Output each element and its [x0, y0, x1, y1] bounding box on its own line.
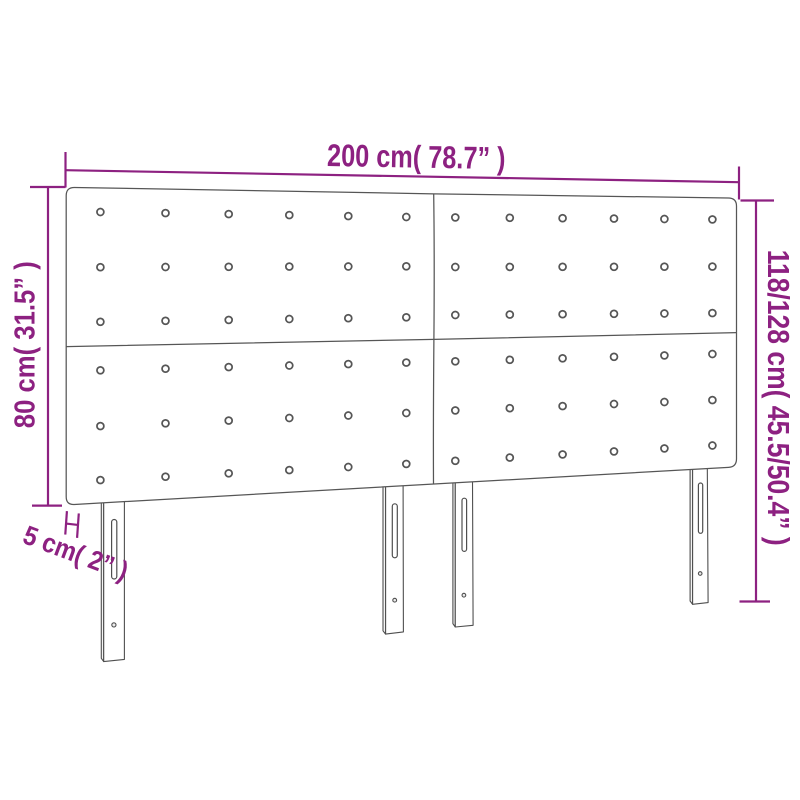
svg-text:80 cm( 31.5” ): 80 cm( 31.5” )	[10, 261, 42, 428]
svg-text:200 cm( 78.7” ): 200 cm( 78.7” )	[327, 137, 506, 176]
svg-text:118/128 cm( 45.5/50.4” ): 118/128 cm( 45.5/50.4” )	[761, 250, 795, 546]
